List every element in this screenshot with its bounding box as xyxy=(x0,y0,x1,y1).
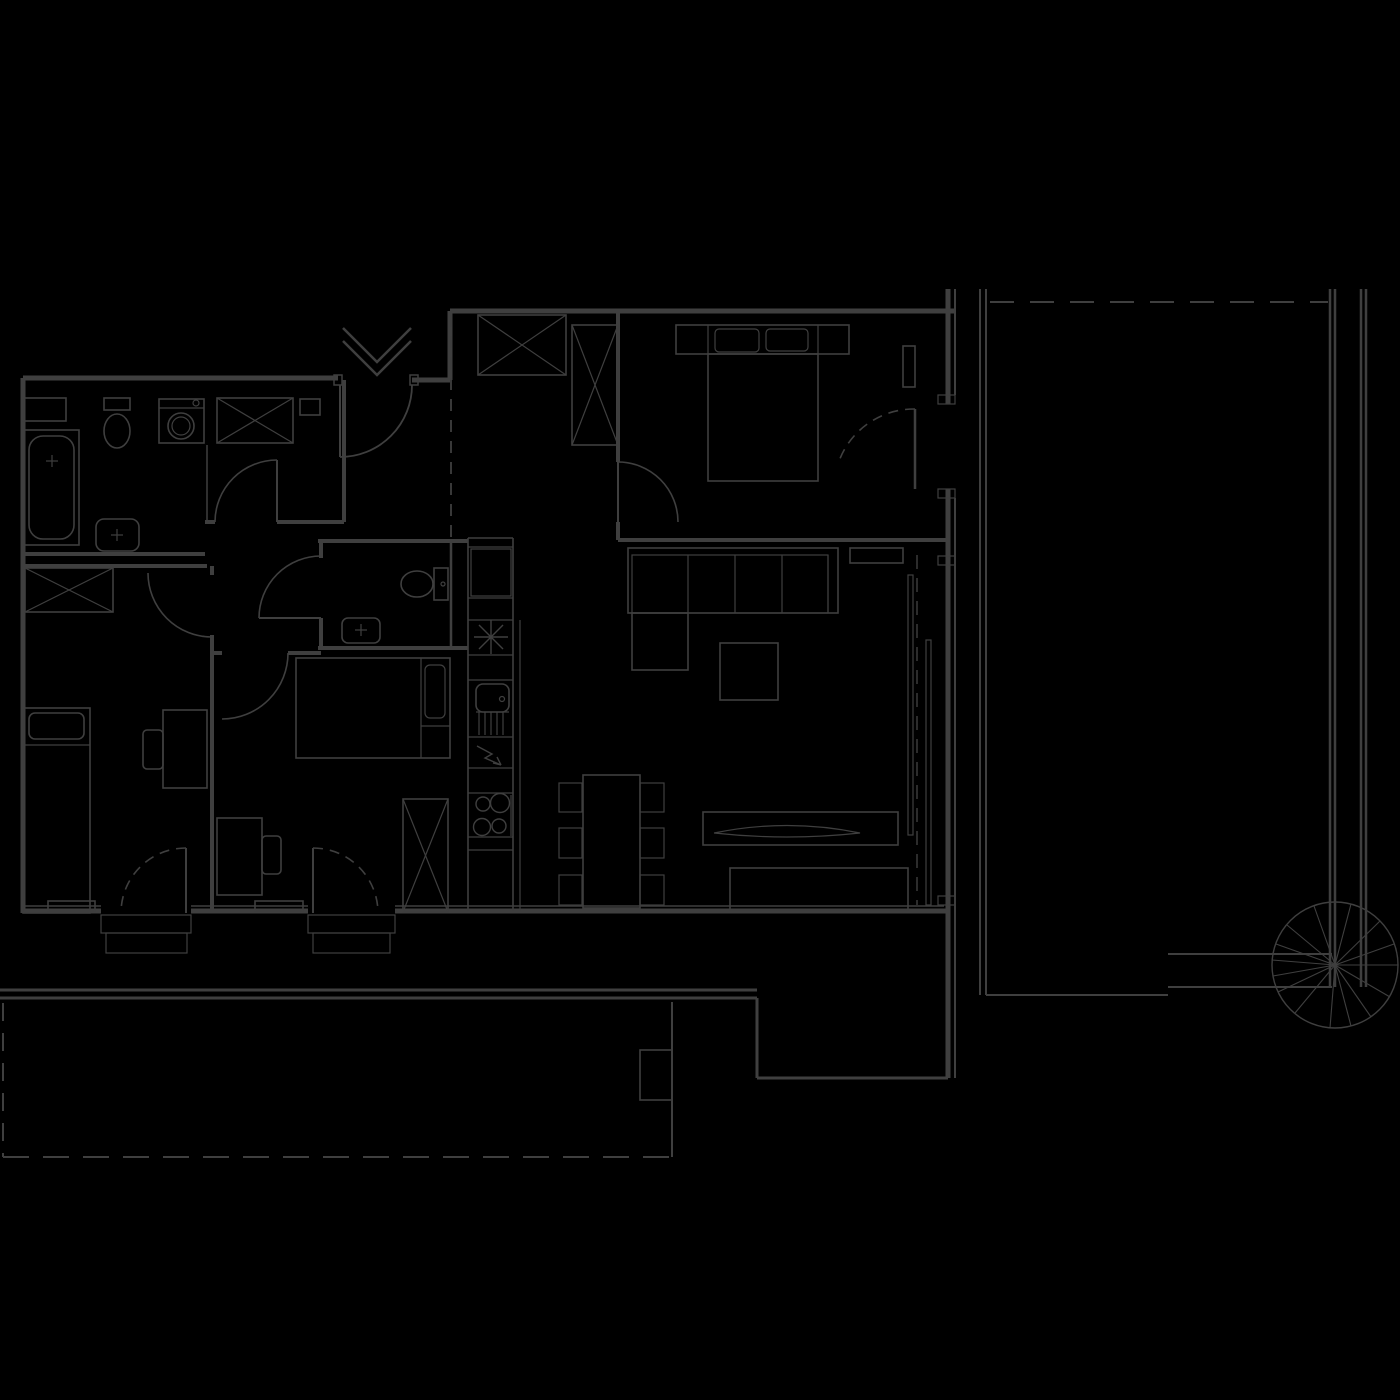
dashed-boundaries xyxy=(3,302,1328,1157)
bedroom-middle xyxy=(217,653,450,953)
bedroom-master xyxy=(618,325,955,522)
page xyxy=(0,0,1400,1400)
hall-closets xyxy=(478,315,618,445)
bathroom xyxy=(23,398,320,551)
lower-terrace xyxy=(640,1050,672,1100)
wc xyxy=(259,556,448,643)
entrance-door xyxy=(334,328,418,457)
floor-plan xyxy=(0,0,1400,1400)
living-dining xyxy=(559,548,908,910)
bedroom-left xyxy=(23,568,212,953)
kitchen xyxy=(468,538,520,911)
terrace-walls xyxy=(0,289,1366,1157)
